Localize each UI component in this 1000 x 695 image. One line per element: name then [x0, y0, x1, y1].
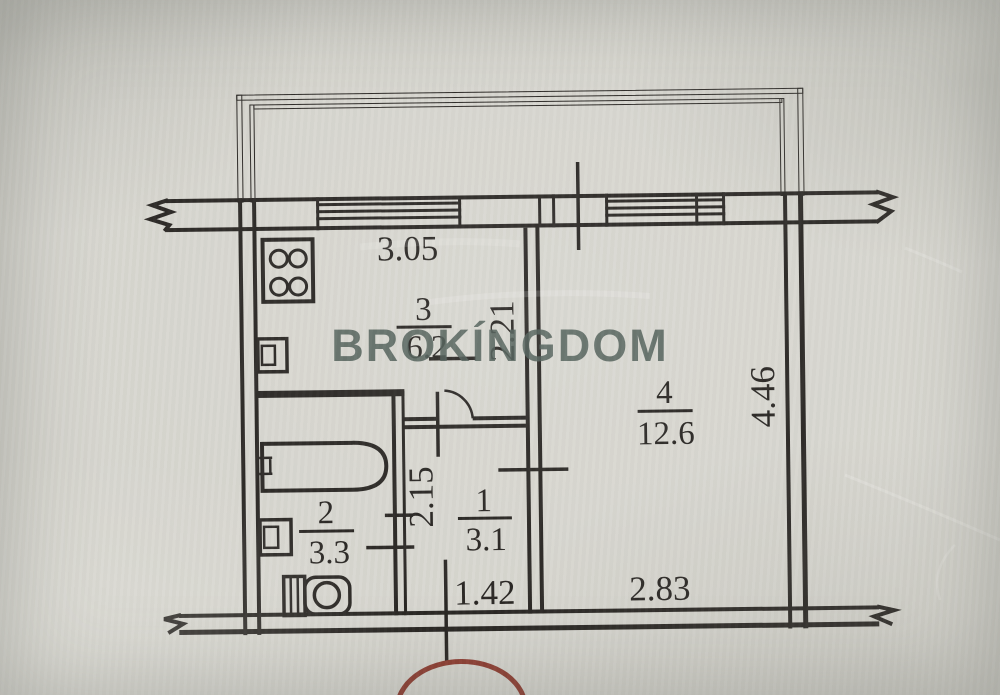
- tick-hall-bottom: [445, 560, 446, 663]
- bathtub: [259, 442, 387, 491]
- dim-2-15: 2.15: [401, 466, 441, 528]
- room-2-number: 2: [317, 495, 334, 531]
- wall-break-left: [150, 200, 171, 231]
- room-1-area: 3.1: [465, 522, 507, 559]
- wall-hall-top: [403, 417, 439, 421]
- room-3-number: 3: [415, 292, 432, 328]
- bathroom-sink: [260, 520, 291, 555]
- room-4-area: 12.6: [637, 416, 695, 453]
- stove: [263, 239, 314, 302]
- room-3-area: 6.2: [406, 330, 448, 367]
- room-4-number: 4: [656, 375, 673, 411]
- dim-2-83: 2.83: [629, 569, 691, 609]
- kitchen-sink: [258, 339, 287, 372]
- room-1-number: 1: [475, 483, 492, 519]
- door-swing-arc: [444, 390, 472, 418]
- top-wall: [237, 88, 804, 202]
- left-wall: [238, 198, 247, 635]
- dim-3-05: 3.05: [377, 229, 439, 269]
- dim-2-21: 2.21: [482, 300, 522, 362]
- wall-break-right: [873, 191, 893, 222]
- tick-hall-top: [437, 392, 438, 457]
- window-band: [150, 190, 893, 232]
- wall-bathroom-hall: [391, 391, 398, 615]
- wall-bathroom-top: [256, 389, 404, 398]
- floor-plan-drawing: 3 6.2 2 3.3 1 3.1 4 12.6 3.05 2.21 2.15 …: [0, 0, 1000, 695]
- dim-4-46: 4.46: [743, 366, 783, 428]
- tick-living-wall: [498, 469, 568, 470]
- toilet: [284, 576, 350, 616]
- room-2-area: 3.3: [309, 535, 351, 572]
- red-circle-mark: [397, 661, 526, 695]
- dim-1-42: 1.42: [454, 573, 516, 613]
- right-wall: [783, 191, 792, 628]
- floor-plan-photo: 3 6.2 2 3.3 1 3.1 4 12.6 3.05 2.21 2.15 …: [0, 0, 1000, 695]
- tick-window: [578, 162, 579, 250]
- wall-kitchen-living: [523, 228, 532, 614]
- tick-bath-wall-2: [366, 547, 414, 548]
